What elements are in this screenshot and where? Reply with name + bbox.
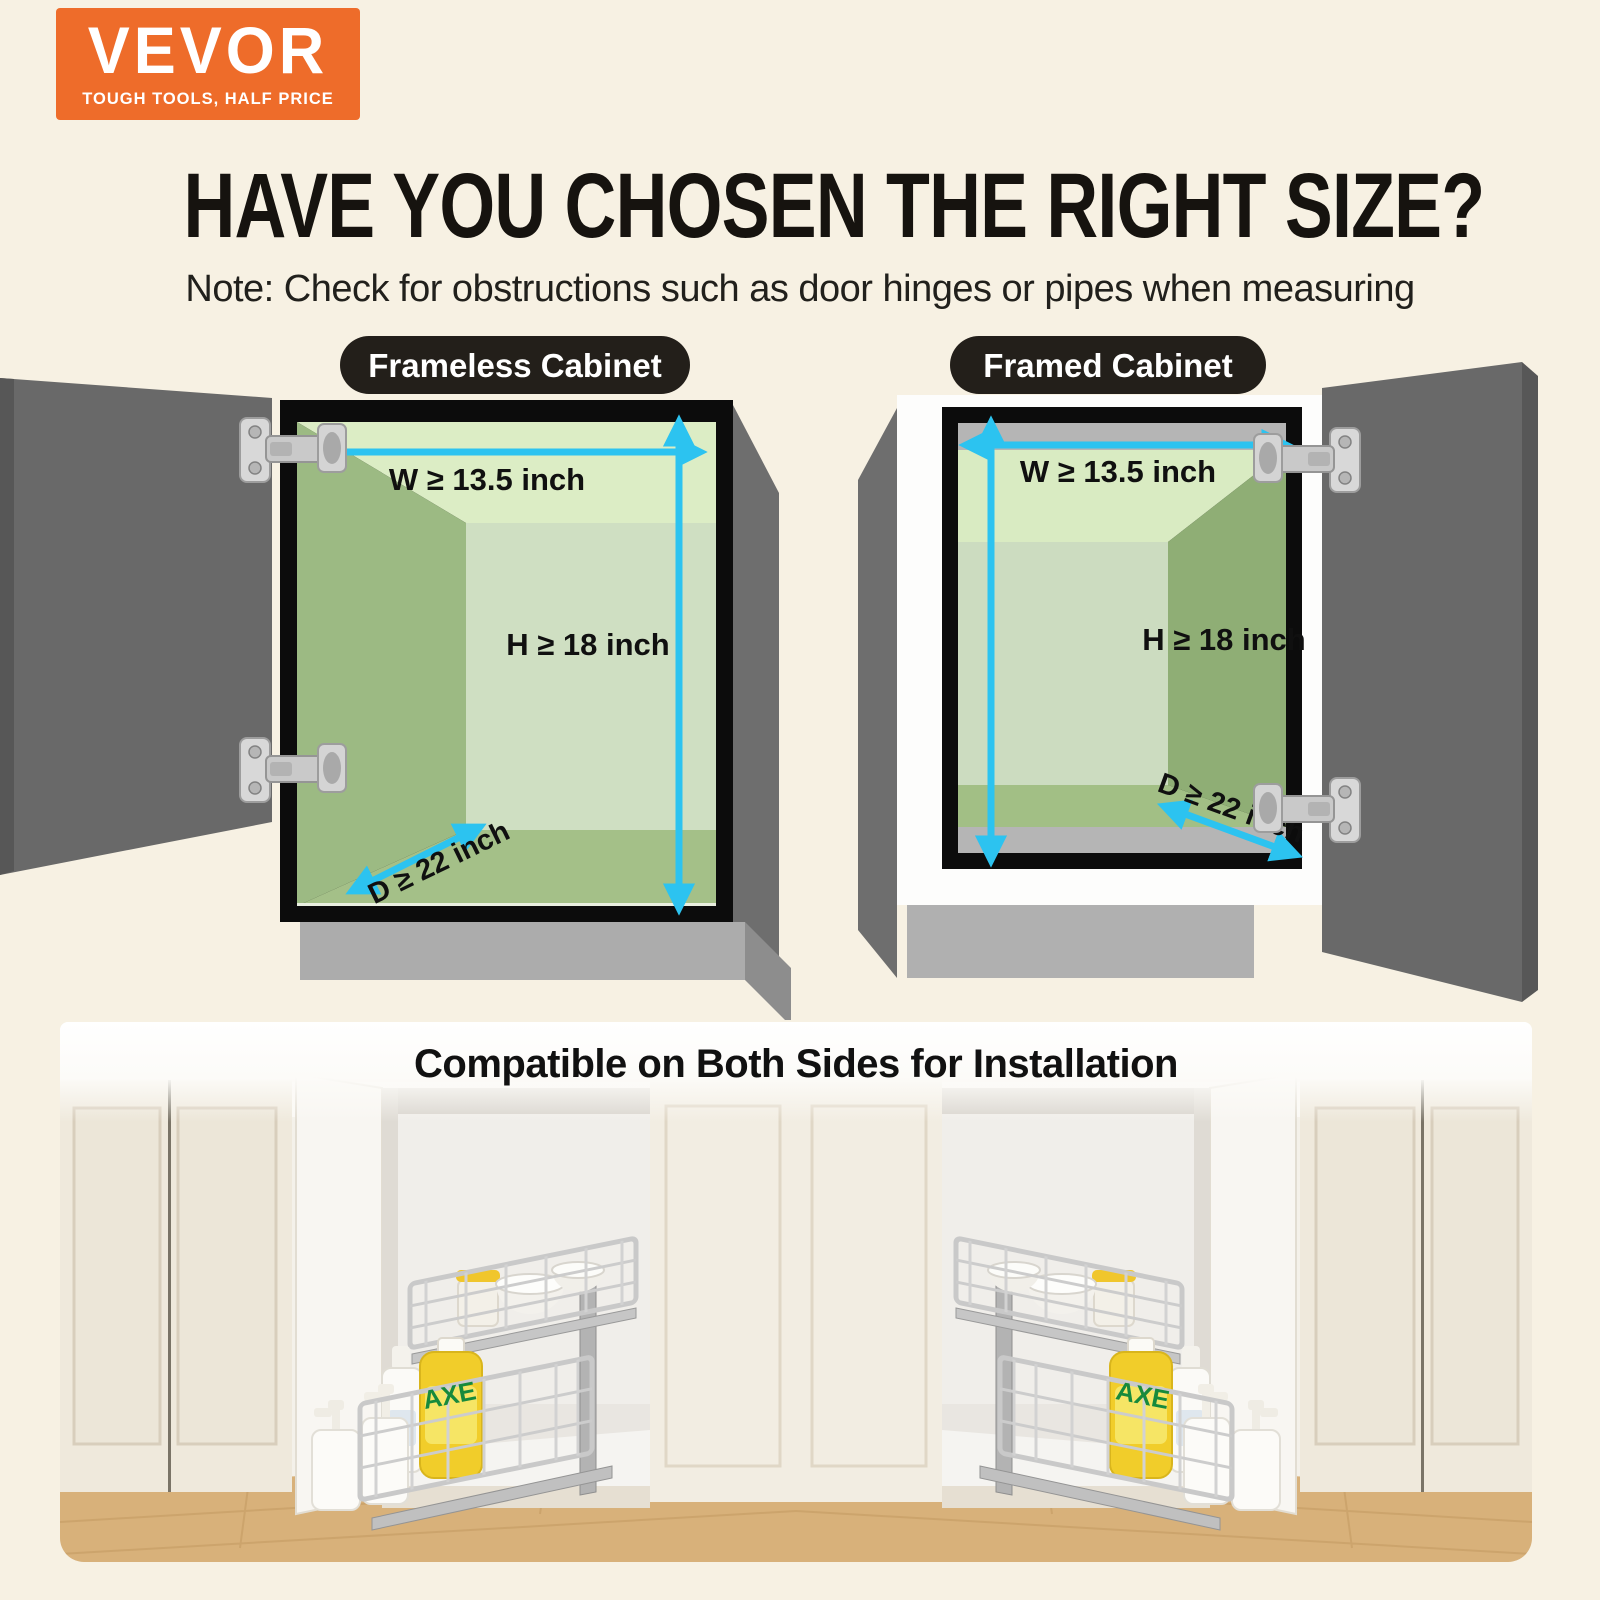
- door-edge: [0, 378, 14, 875]
- infographic-page: VEVOR TOUGH TOOLS, HALF PRICE HAVE YOU C…: [0, 0, 1600, 1600]
- logo-wordmark: VEVOR: [88, 18, 329, 84]
- height-label: H ≥ 18 inch: [506, 627, 669, 662]
- door-edge: [1522, 362, 1538, 1002]
- height-label: H ≥ 18 inch: [1142, 622, 1305, 657]
- page-title-wrap: HAVE YOU CHOSEN THE RIGHT SIZE?: [0, 158, 1600, 255]
- frameless-cabinet-diagram: Frameless Cabinet W ≥ 13.5 inch H ≥ 18 i…: [0, 330, 800, 1020]
- page-title: HAVE YOU CHOSEN THE RIGHT SIZE?: [183, 158, 1484, 255]
- vevor-logo: VEVOR TOUGH TOOLS, HALF PRICE: [56, 8, 360, 120]
- framed-cabinet-diagram: Framed Cabinet W ≥ 13.5 inch H ≥ 18 inch…: [800, 330, 1600, 1020]
- open-door-panel: [0, 378, 272, 875]
- cabinet-side-sliver: [858, 408, 897, 978]
- width-label: W ≥ 13.5 inch: [389, 462, 585, 497]
- photos-heading: Compatible on Both Sides for Installatio…: [60, 1042, 1532, 1087]
- cabinet-base: [300, 922, 745, 980]
- cabinet-base: [907, 905, 1254, 978]
- cabinet-side-wall: [733, 405, 779, 998]
- installation-photos: AXE AXE Compatible on Both Sides for Ins…: [60, 1022, 1532, 1562]
- logo-tagline: TOUGH TOOLS, HALF PRICE: [82, 90, 334, 109]
- interior-floor-edge: [297, 903, 716, 906]
- framed-label: Framed Cabinet: [983, 347, 1232, 384]
- measuring-note: Note: Check for obstructions such as doo…: [0, 268, 1600, 311]
- photos-heading-band: Compatible on Both Sides for Installatio…: [60, 1022, 1532, 1122]
- width-label: W ≥ 13.5 inch: [1020, 454, 1216, 489]
- frameless-label: Frameless Cabinet: [368, 347, 661, 384]
